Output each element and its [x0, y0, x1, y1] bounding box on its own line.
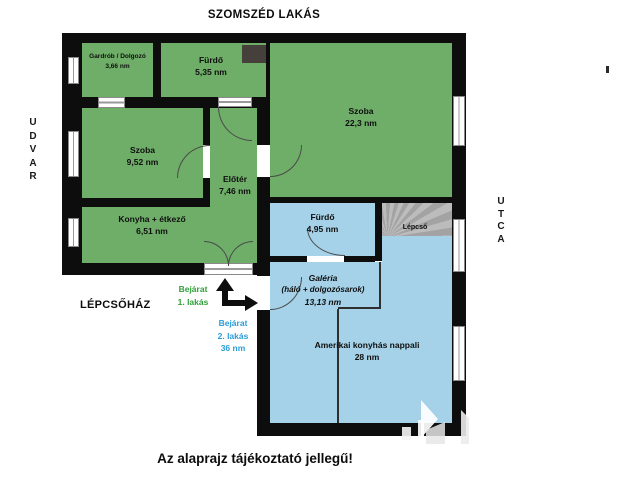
artifact-dot — [606, 66, 609, 73]
room-label-gardrob: Gardrób / Dolgozó 3,66 nm — [82, 52, 153, 72]
window-left-1 — [68, 57, 79, 84]
neighbor-apartment-label: SZOMSZÉD LAKÁS — [160, 9, 368, 21]
room-label-nappali: Amerikai konyhás nappali 28 nm — [276, 339, 458, 363]
wall-furdo2-right — [375, 203, 382, 261]
room-label-lepcso: Lépcső — [382, 223, 448, 232]
room-label-furdo1: Fürdő 5,35 nm — [161, 54, 261, 78]
door-gap-furdo2 — [307, 256, 344, 262]
wall-furdo1-szoba — [266, 43, 270, 97]
wall-top — [62, 33, 466, 43]
room-label-szoba-kis: Szoba 9,52 nm — [82, 144, 203, 168]
room-label-konyha: Konyha + étkező 6,51 nm — [82, 213, 222, 237]
opening-gardrob-szoba — [98, 97, 125, 108]
disclaimer-text: Az alaprajz tájékoztató jellegű! — [120, 451, 390, 466]
window-left-3 — [68, 218, 79, 247]
window-right-2 — [453, 219, 465, 272]
wall-szoba-kis-bottom — [82, 198, 210, 207]
window-left-2 — [68, 131, 79, 177]
watermark-logo — [393, 392, 478, 444]
gallery-edge-line — [337, 309, 339, 423]
room-understairs-floor — [382, 236, 452, 262]
room-label-galeria: Galéria (háló + dolgozósarok) 13,13 nm — [262, 272, 384, 308]
entrance-label-apt2: Bejárat 2. lakás 36 nm — [198, 317, 268, 355]
opening-eloter-top — [218, 97, 252, 107]
room-label-eloter: Előtér 7,46 nm — [208, 173, 262, 197]
street-label: U T C A — [493, 196, 509, 246]
entrance-arrow-right-icon — [245, 295, 258, 311]
wall-gardrob-furdo1 — [153, 43, 161, 97]
room-label-furdo2: Fürdő 4,95 nm — [270, 211, 375, 235]
window-right-1 — [453, 96, 465, 146]
floor-plan-image: SZOMSZÉD LAKÁS U D V A R U T C A LÉPCSŐH… — [0, 0, 640, 480]
stairwell-label: LÉPCSŐHÁZ — [80, 299, 151, 311]
courtyard-label: U D V A R — [25, 116, 41, 184]
wall-apartment2-top — [257, 197, 452, 203]
room-label-szoba-nagy: Szoba 22,3 nm — [270, 105, 452, 129]
wall-bottom-apartment1 — [62, 263, 204, 275]
entrance-label-apt1: Bejárat 1. lakás — [158, 283, 228, 308]
